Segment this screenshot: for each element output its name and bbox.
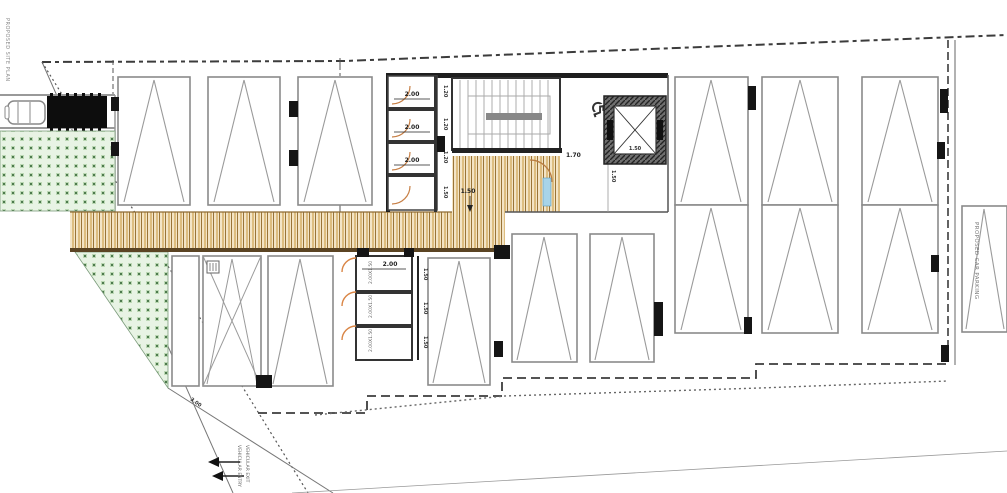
door-arc bbox=[342, 326, 356, 340]
driveway-entry-label: VEHICULAR ENTRY bbox=[236, 445, 242, 487]
stair-handrail bbox=[486, 113, 542, 120]
room1-depth-label: 1.20 bbox=[442, 85, 448, 98]
room1-size-label: 2.00X1.50 bbox=[368, 261, 374, 284]
room1-width-label: 2.00 bbox=[405, 91, 420, 98]
room3-size-label: 2.00X1.50 bbox=[368, 329, 374, 352]
room2-depth-label: 1.20 bbox=[442, 118, 448, 131]
parking-stalls-right bbox=[675, 77, 938, 333]
elevator: 1.50 1.50 bbox=[604, 96, 666, 183]
floor-plan-canvas: 1.50 2.00 2.00 2.00 1.20 1.20 1.20 1.50 bbox=[0, 0, 1007, 493]
water-feature bbox=[543, 178, 551, 206]
rooms-bottom-width-label: 2.00 bbox=[383, 261, 398, 268]
arrow-left-icon bbox=[208, 457, 240, 467]
truck-icon bbox=[47, 93, 107, 131]
room2b-depth-label: 1.50 bbox=[422, 302, 428, 315]
room3b-depth-label: 1.50 bbox=[422, 336, 428, 349]
parking-stall bbox=[268, 256, 333, 386]
lobby-depth-label: 1.50 bbox=[442, 186, 448, 199]
margin-note: PROPOSED SITE PLAN bbox=[4, 18, 10, 82]
room2-size-label: 2.00X1.50 bbox=[368, 295, 374, 318]
room3-depth-label: 1.20 bbox=[442, 151, 448, 164]
parking-stall bbox=[762, 77, 838, 205]
room1b-depth-label: 1.50 bbox=[422, 268, 428, 281]
utility-rooms-bottom: 2.00X1.50 2.00X1.50 2.00X1.50 2.00 1.50 … bbox=[342, 256, 428, 360]
parking-stall bbox=[172, 256, 199, 386]
parking-stall bbox=[762, 205, 838, 333]
parking-stall bbox=[512, 234, 577, 362]
room3-width-label: 2.00 bbox=[405, 157, 420, 164]
parking-stall bbox=[428, 258, 490, 385]
parking-stall bbox=[298, 77, 372, 205]
driveway-exit-label: VEHICULAR EXIT bbox=[244, 445, 250, 483]
lift-cab-label: 1.50 bbox=[629, 146, 642, 152]
parking-stall bbox=[118, 77, 190, 205]
room2-width-label: 2.00 bbox=[405, 124, 420, 131]
visitor-parking-stall: PROPOSED CAR PARKING bbox=[962, 206, 1007, 332]
visitor-stall-label: PROPOSED CAR PARKING bbox=[973, 222, 979, 299]
door-arc bbox=[342, 258, 356, 272]
walkway-width-label: 1.50 bbox=[461, 188, 476, 195]
parking-stall bbox=[675, 205, 748, 333]
small-pictogram bbox=[207, 261, 219, 273]
parking-stall bbox=[862, 77, 938, 205]
parking-stalls-top-left bbox=[118, 77, 372, 205]
parking-stall bbox=[590, 234, 654, 362]
parking-stall bbox=[208, 77, 280, 205]
no-parking-bay bbox=[203, 256, 261, 386]
car-icon bbox=[5, 101, 45, 124]
staircase: 1.70 bbox=[452, 78, 581, 159]
floor-plan-svg: 1.50 2.00 2.00 2.00 1.20 1.20 1.20 1.50 bbox=[0, 0, 1007, 493]
lift-shaft-label: 1.50 bbox=[610, 170, 616, 183]
parking-stall bbox=[862, 205, 938, 333]
ramp-dim-label: 3.00 bbox=[189, 397, 203, 409]
parking-stall bbox=[675, 77, 748, 205]
ramp-dimension: 3.00 bbox=[189, 397, 203, 409]
stairs-clear-label: 1.70 bbox=[566, 152, 581, 159]
door-arc bbox=[342, 292, 356, 306]
